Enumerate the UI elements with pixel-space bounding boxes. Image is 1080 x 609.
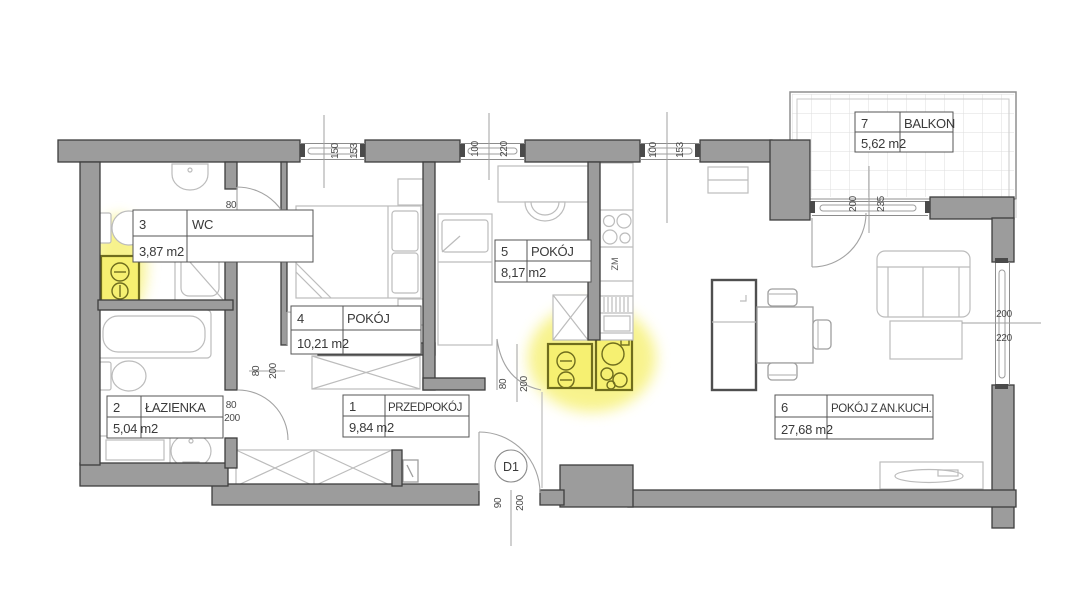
room-area: 8,17 m2: [501, 265, 546, 280]
room4-door-height-dim: 200: [268, 362, 279, 379]
coffee-table-icon: [890, 321, 962, 359]
kitchen-door-width-dim: 80: [498, 378, 509, 389]
room-label-living-room: 6 POKÓJ Z AN.KUCH. 27,68 m2: [775, 395, 933, 439]
balcony-door-window: [810, 201, 930, 216]
room-label-balcony: 7 BALKON 5,62 m2: [855, 112, 955, 152]
toilet-icon: [112, 361, 146, 391]
dishwasher-label: ZM: [610, 258, 620, 271]
chair-icon: [768, 289, 797, 306]
window1-width-dim: 150: [330, 142, 341, 159]
room-area: 3,87 m2: [139, 244, 184, 259]
room-number: 5: [501, 244, 508, 259]
room-number: 3: [139, 217, 146, 232]
room-label-wc: 3 WC 3,87 m2: [133, 210, 313, 262]
window1-height-dim: 153: [349, 142, 360, 159]
room-area: 9,84 m2: [349, 420, 394, 435]
room-area: 10,21 m2: [297, 336, 349, 351]
room-name: POKÓJ Z AN.KUCH.: [831, 402, 932, 415]
room-label-hallway: 1 PRZEDPOKÓJ 9,84 m2: [343, 395, 469, 437]
fridge-icon: [712, 280, 756, 390]
window3-width-dim: 100: [648, 141, 659, 158]
entrance-door-width-dim: 90: [493, 497, 504, 508]
radiator-icon: [604, 297, 628, 312]
kitchen-door-height-dim: 200: [519, 375, 530, 392]
single-bed-icon: [438, 214, 492, 345]
room-area: 27,68 m2: [781, 422, 833, 437]
room-number: 6: [781, 400, 788, 415]
floor-plan-page: ZM: [0, 0, 1080, 609]
wc-door-width-dim: 80: [226, 200, 237, 211]
bathroom-door-width-dim: 80: [226, 400, 237, 411]
toilet-tank-icon: [99, 213, 111, 243]
floor-plan-drawing: ZM: [0, 0, 1080, 609]
nightstand-icon: [398, 179, 424, 205]
room-label-room4: 4 POKÓJ 10,21 m2: [291, 306, 421, 354]
window3-height-dim: 153: [675, 141, 686, 158]
bathroom-door-height-dim: 200: [224, 413, 241, 424]
room-number: 2: [113, 400, 120, 415]
toilet-tank-icon: [99, 362, 111, 390]
room-area: 5,04 m2: [113, 421, 158, 436]
window2-height-dim: 220: [499, 140, 510, 157]
balcony-door-icon: [812, 213, 866, 267]
room-number: 4: [297, 311, 304, 326]
entrance-door-height-dim: 200: [515, 494, 526, 511]
room-number: 1: [349, 399, 356, 414]
room-name: POKÓJ: [531, 244, 574, 259]
sofa-icon: [877, 251, 970, 317]
room-label-room5: 5 POKÓJ 8,17 m2: [495, 240, 591, 282]
kitchen-hob-unit-icon: [548, 344, 592, 388]
room-label-bathroom: 2 ŁAZIENKA 5,04 m2: [107, 396, 223, 438]
entrance-door-symbol: D1: [495, 450, 527, 482]
bathroom-fixtures: [97, 310, 211, 474]
double-bed-icon: [296, 206, 421, 298]
window2-width-dim: 100: [470, 140, 481, 157]
bathroom-door-icon: [238, 390, 288, 440]
chair-icon: [813, 320, 831, 349]
window-right-height-dim: 220: [996, 333, 1013, 344]
entrance-door-label: D1: [503, 460, 519, 474]
dining-table-icon: [757, 307, 813, 363]
room-name: BALKON: [904, 116, 955, 131]
room4-door-width-dim: 80: [251, 365, 262, 376]
room-name: WC: [192, 217, 213, 232]
window-right-width-dim: 200: [996, 309, 1013, 320]
room-name: ŁAZIENKA: [145, 400, 206, 415]
tv-cabinet-icon: [880, 462, 983, 489]
room4-furniture: [296, 179, 424, 325]
room-name: POKÓJ: [347, 311, 390, 326]
balcony-door-width-dim: 200: [848, 195, 859, 212]
bathtub-icon: [97, 310, 211, 358]
room-area: 5,62 m2: [861, 136, 906, 151]
desk-icon: [498, 166, 588, 202]
chair-icon: [768, 363, 797, 380]
room-name: PRZEDPOKÓJ: [388, 401, 462, 414]
room-number: 7: [861, 116, 868, 131]
balcony-door-height-dim: 235: [876, 195, 887, 212]
